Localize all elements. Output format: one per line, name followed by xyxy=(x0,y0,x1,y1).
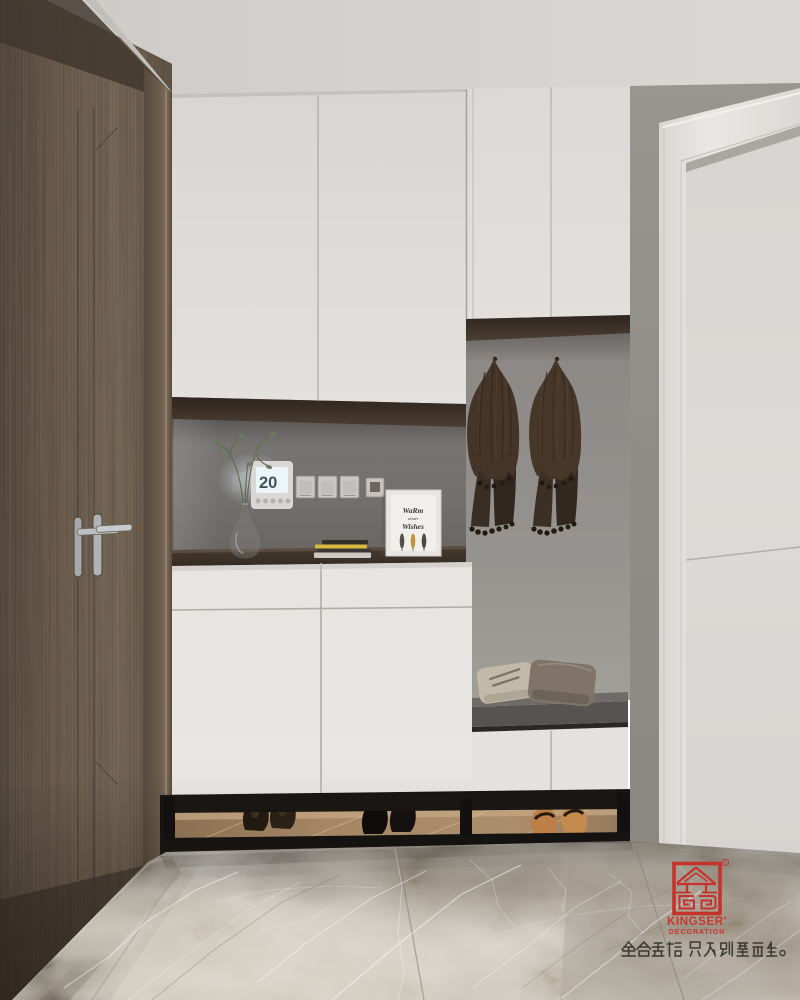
svg-text:20: 20 xyxy=(259,474,277,492)
svg-text:KINGSER': KINGSER' xyxy=(667,916,727,928)
svg-text:R: R xyxy=(724,861,727,866)
svg-text:winter: winter xyxy=(408,516,419,521)
svg-text:DECORATION: DECORATION xyxy=(669,929,726,936)
svg-text:WaRm: WaRm xyxy=(403,506,424,515)
svg-text:Wishes: Wishes xyxy=(402,522,424,531)
